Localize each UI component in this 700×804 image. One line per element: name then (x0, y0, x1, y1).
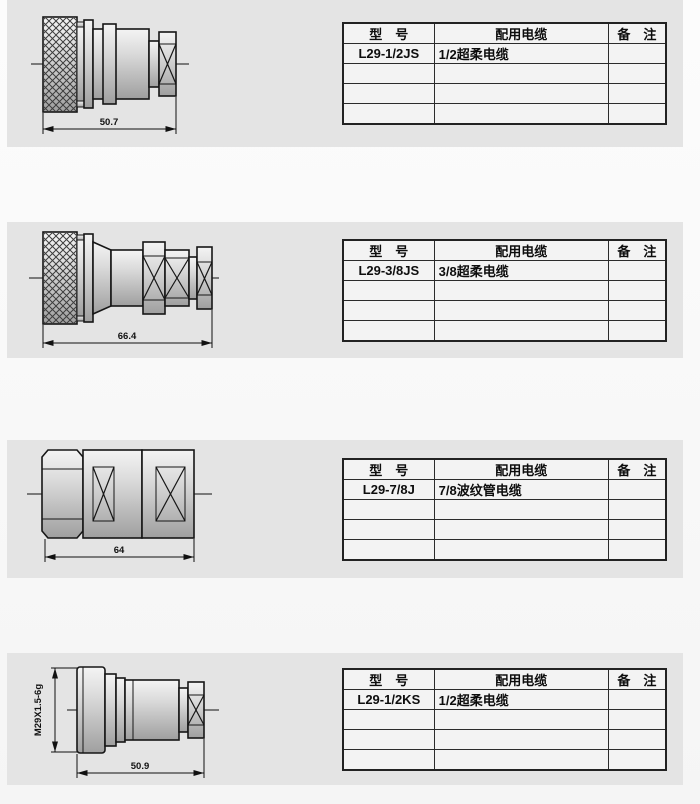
knurl-pattern (44, 18, 76, 111)
cable-neck (149, 41, 159, 87)
table-row: L29-3/8JS 3/8超柔电缆 (343, 260, 666, 280)
drawing-area-1: 50.7 (7, 0, 342, 147)
product-section-3: 64 型 号 配用电缆 备 注 L29-7/8J 7/8波纹管电缆 (7, 440, 683, 578)
connector-body-drawing (42, 450, 194, 538)
collar-ring (84, 234, 93, 322)
table-header-row: 型 号 配用电缆 备 注 (343, 240, 666, 261)
header-remark: 备 注 (608, 669, 666, 690)
drawing-area-4: M29X1.5-6g (7, 653, 342, 785)
product-section-2: 66.4 型 号 配用电缆 备 注 L29-3/8JS 3/8超柔电缆 (7, 222, 683, 358)
dimension-label: 50.7 (100, 117, 119, 128)
product-section-1: 50.7 型 号 配用电缆 备 注 L29-1/2JS 1/2超柔电缆 (7, 0, 683, 147)
header-cable: 配用电缆 (434, 240, 608, 261)
dimension-label: 50.9 (131, 761, 150, 772)
table-row: L29-1/2KS 1/2超柔电缆 (343, 689, 666, 709)
rear-body (142, 450, 194, 538)
dimension-label: 66.4 (118, 331, 137, 342)
header-remark: 备 注 (608, 459, 666, 480)
cable-cell: 1/2超柔电缆 (434, 44, 608, 64)
cable-cell: 3/8超柔电缆 (434, 260, 608, 280)
threaded-flange (77, 667, 105, 753)
table-row-empty (343, 320, 666, 341)
model-cell: L29-1/2KS (343, 689, 434, 709)
technical-drawing-l29-1-2ks: M29X1.5-6g (7, 653, 342, 785)
remark-cell (608, 44, 666, 64)
connector-body-drawing (77, 667, 204, 753)
cable-cell: 7/8波纹管电缆 (434, 479, 608, 499)
header-remark: 备 注 (608, 240, 666, 261)
table-row-empty (343, 709, 666, 729)
table-header-row: 型 号 配用电缆 备 注 (343, 459, 666, 480)
connector-body (93, 29, 149, 99)
header-model: 型 号 (343, 240, 434, 261)
spec-table-3: 型 号 配用电缆 备 注 L29-7/8J 7/8波纹管电缆 (342, 458, 667, 561)
drawing-area-3: 64 (7, 440, 342, 578)
table-row-empty (343, 539, 666, 560)
table-row-empty (343, 519, 666, 539)
ring-step-1 (105, 674, 116, 746)
table-row: L29-7/8J 7/8波纹管电缆 (343, 479, 666, 499)
hex-coupling-nut (42, 450, 83, 538)
header-cable: 配用电缆 (434, 669, 608, 690)
table-row-empty (343, 729, 666, 749)
table-row-empty (343, 499, 666, 519)
table-header-row: 型 号 配用电缆 备 注 (343, 23, 666, 44)
cable-neck (179, 688, 188, 732)
table-row: L29-1/2JS 1/2超柔电缆 (343, 44, 666, 64)
table-row-empty (343, 280, 666, 300)
spec-table-1: 型 号 配用电缆 备 注 L29-1/2JS 1/2超柔电缆 (342, 22, 667, 125)
header-model: 型 号 (343, 23, 434, 44)
product-section-4: M29X1.5-6g (7, 653, 683, 785)
ring-step-2 (116, 678, 125, 742)
connector-body-drawing (43, 232, 212, 324)
table-row-empty (343, 749, 666, 770)
spec-table-4: 型 号 配用电缆 备 注 L29-1/2KS 1/2超柔电缆 (342, 668, 667, 771)
spec-table-2: 型 号 配用电缆 备 注 L29-3/8JS 3/8超柔电缆 (342, 239, 667, 342)
dimension-label: 64 (114, 545, 125, 556)
catalog-page: 50.7 型 号 配用电缆 备 注 L29-1/2JS 1/2超柔电缆 (0, 0, 700, 804)
cable-neck (189, 257, 197, 299)
technical-drawing-l29-3-8js: 66.4 (7, 222, 342, 358)
front-body (83, 450, 142, 538)
remark-cell (608, 689, 666, 709)
step-ring (77, 240, 84, 316)
header-model: 型 号 (343, 459, 434, 480)
header-cable: 配用电缆 (434, 459, 608, 480)
header-remark: 备 注 (608, 23, 666, 44)
technical-drawing-l29-7-8j: 64 (7, 440, 342, 578)
table-row-empty (343, 64, 666, 84)
length-dimension: 64 (45, 539, 194, 562)
connector-body (111, 250, 143, 306)
technical-drawing-l29-1-2js: 50.7 (7, 0, 342, 147)
header-model: 型 号 (343, 669, 434, 690)
cable-cell: 1/2超柔电缆 (434, 689, 608, 709)
remark-cell (608, 479, 666, 499)
model-cell: L29-3/8JS (343, 260, 434, 280)
table-row-empty (343, 104, 666, 125)
raised-ring (103, 24, 116, 104)
knurl-pattern (44, 233, 76, 323)
remark-cell (608, 260, 666, 280)
thread-dimension-label: M29X1.5-6g (33, 684, 44, 736)
collar-ring (84, 20, 93, 108)
model-cell: L29-7/8J (343, 479, 434, 499)
drawing-area-2: 66.4 (7, 222, 342, 358)
table-row-empty (343, 300, 666, 320)
table-row-empty (343, 84, 666, 104)
step-ring (77, 27, 84, 101)
model-cell: L29-1/2JS (343, 44, 434, 64)
connector-body-drawing (43, 17, 176, 112)
header-cable: 配用电缆 (434, 23, 608, 44)
table-header-row: 型 号 配用电缆 备 注 (343, 669, 666, 690)
taper-cone (93, 242, 111, 314)
